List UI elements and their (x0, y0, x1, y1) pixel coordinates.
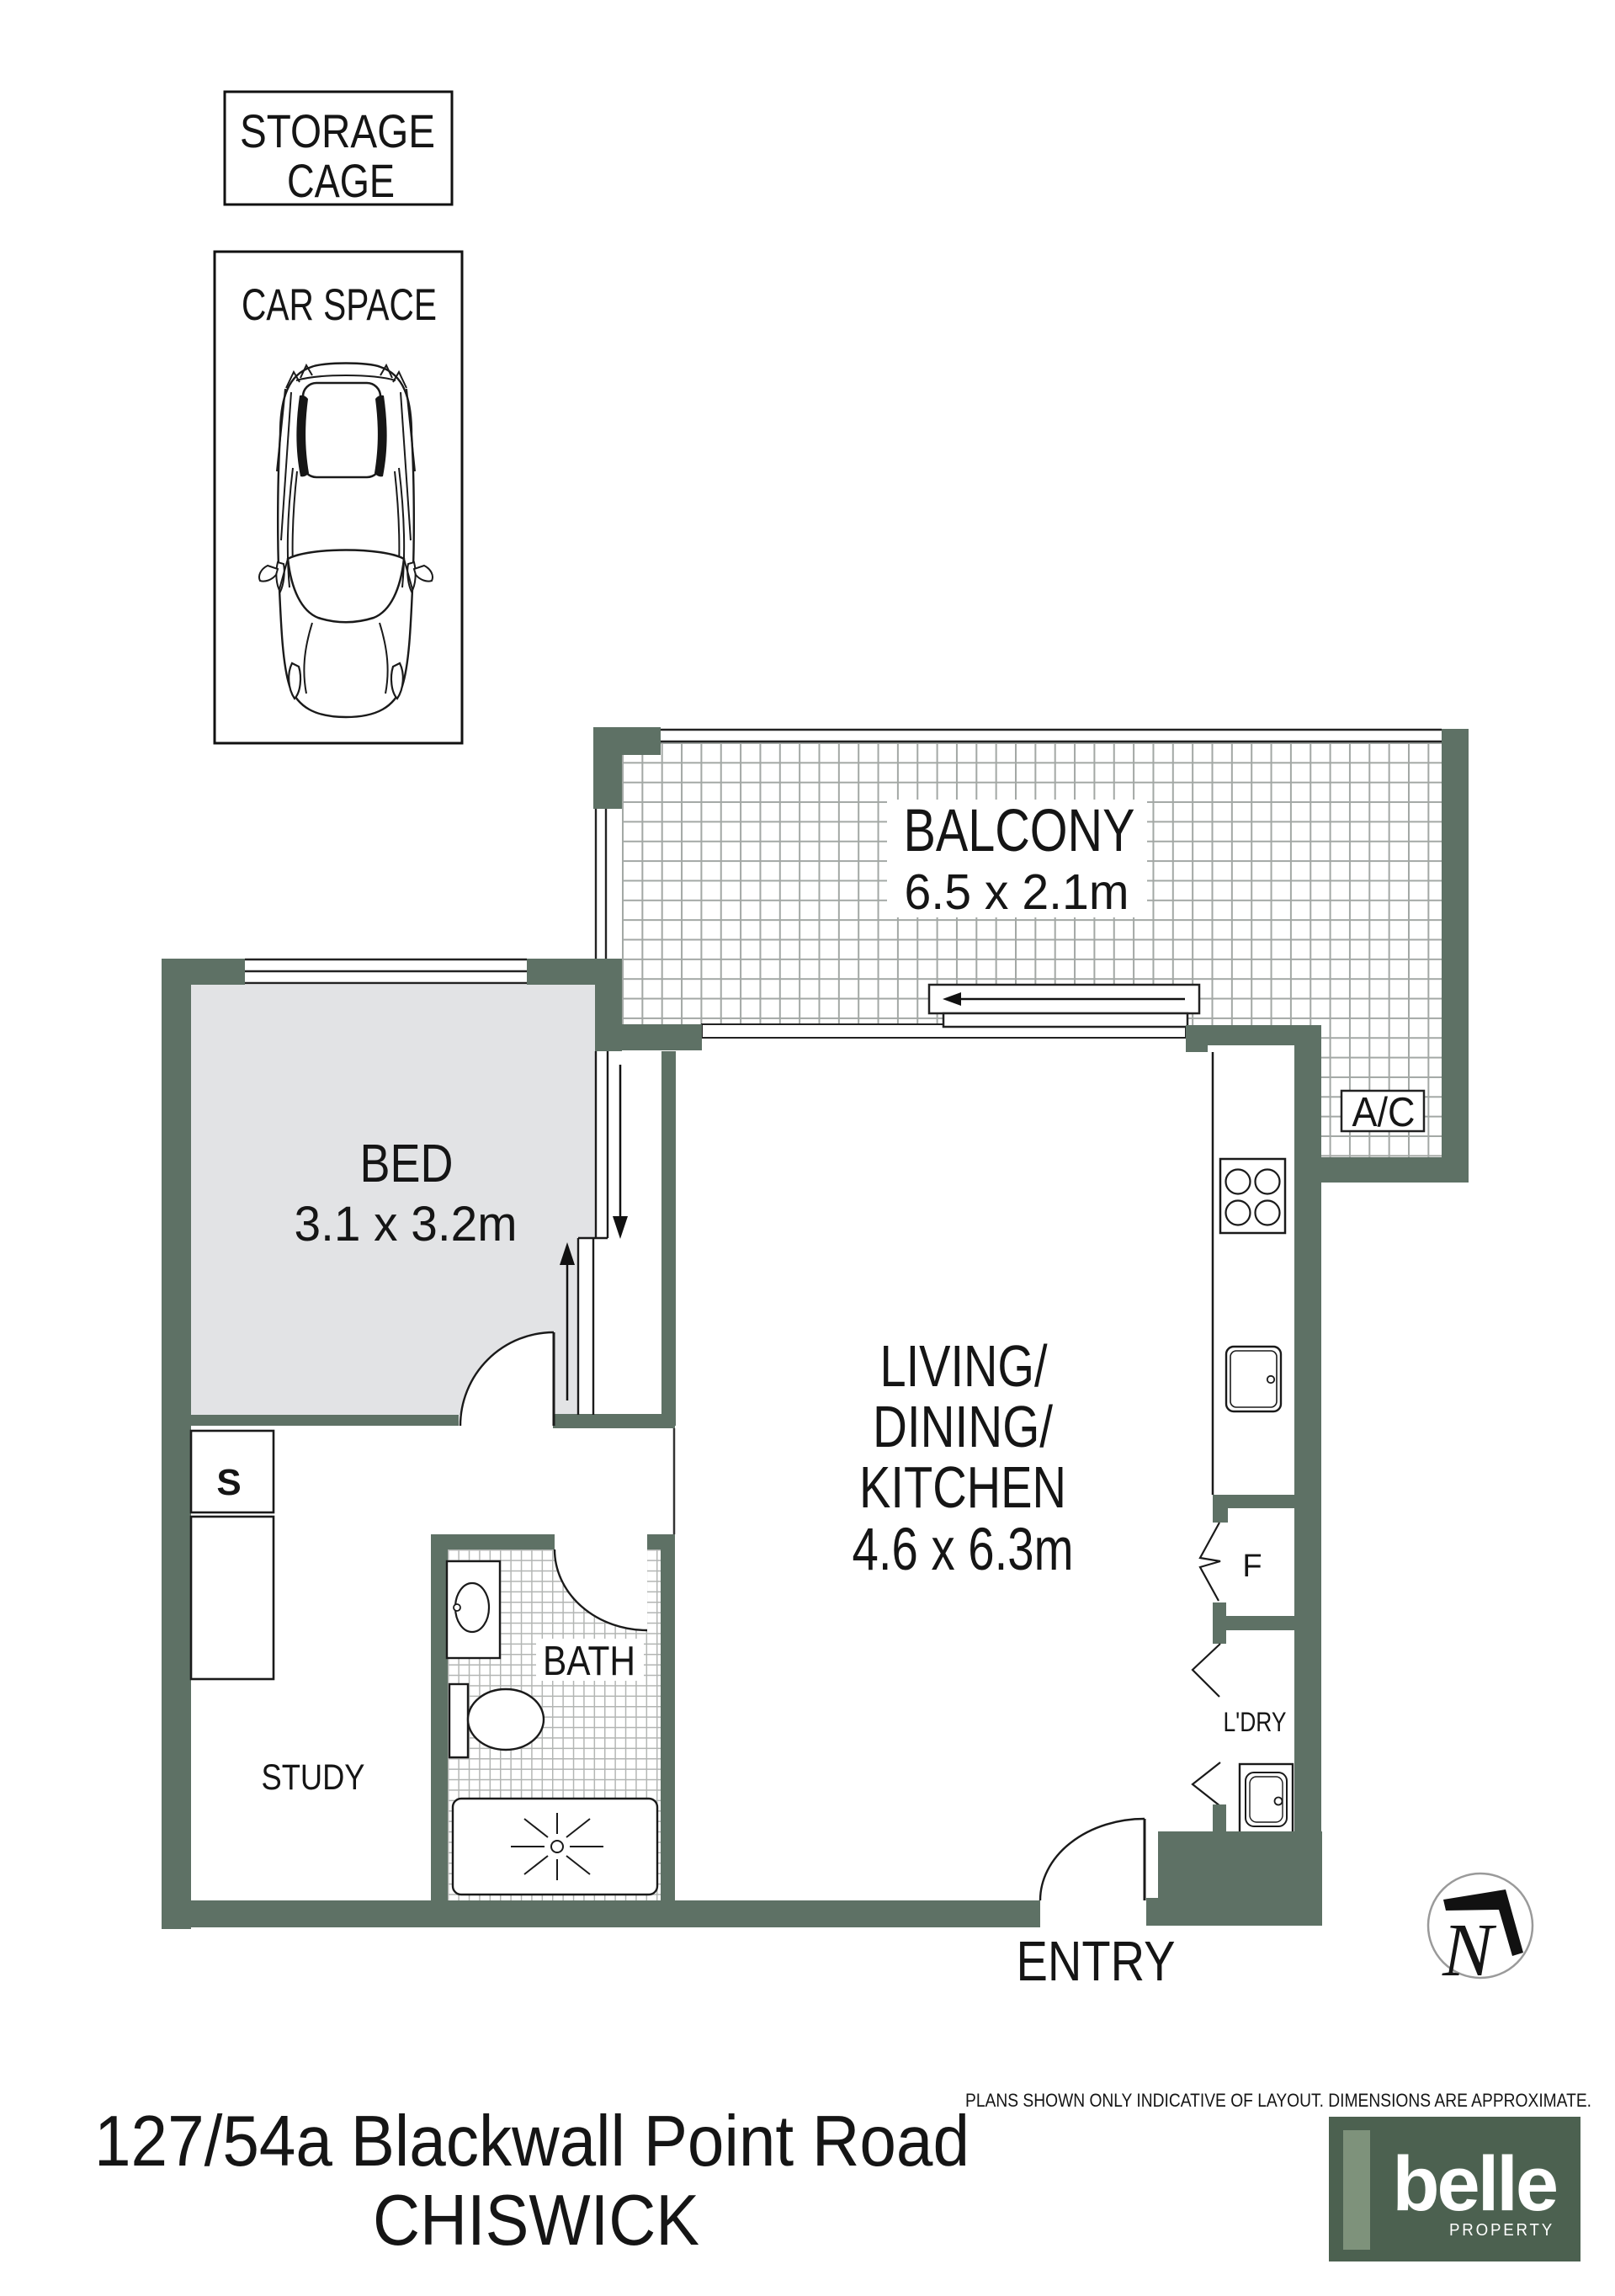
svg-text:PLANS SHOWN ONLY INDICATIVE OF: PLANS SHOWN ONLY INDICATIVE OF LAYOUT. D… (965, 2090, 1591, 2111)
svg-text:BALCONY: BALCONY (904, 798, 1135, 864)
svg-text:CAR SPACE: CAR SPACE (242, 280, 437, 330)
svg-text:belle: belle (1392, 2141, 1556, 2227)
svg-text:LIVING/: LIVING/ (880, 1333, 1048, 1399)
svg-text:DINING/: DINING/ (873, 1394, 1053, 1459)
svg-text:L'DRY: L'DRY (1224, 1707, 1287, 1737)
svg-text:PROPERTY: PROPERTY (1449, 2221, 1554, 2240)
svg-text:127/54a Blackwall Point Road: 127/54a Blackwall Point Road (94, 2102, 970, 2182)
svg-text:S: S (216, 1462, 241, 1503)
svg-text:STORAGE: STORAGE (240, 104, 435, 157)
svg-text:N: N (1442, 1909, 1497, 1992)
svg-text:ENTRY: ENTRY (1017, 1930, 1176, 1993)
svg-text:CAGE: CAGE (287, 154, 395, 207)
svg-text:F: F (1242, 1549, 1262, 1584)
svg-text:KITCHEN: KITCHEN (859, 1454, 1066, 1520)
svg-text:A/C: A/C (1352, 1090, 1416, 1135)
svg-text:STUDY: STUDY (262, 1757, 365, 1798)
svg-text:BATH: BATH (543, 1639, 635, 1684)
svg-text:6.5 x 2.1m: 6.5 x 2.1m (905, 864, 1129, 920)
svg-text:BED: BED (360, 1133, 454, 1193)
svg-text:CHISWICK: CHISWICK (373, 2181, 699, 2261)
svg-text:3.1 x 3.2m: 3.1 x 3.2m (295, 1197, 518, 1252)
svg-text:4.6 x 6.3m: 4.6 x 6.3m (853, 1517, 1074, 1583)
